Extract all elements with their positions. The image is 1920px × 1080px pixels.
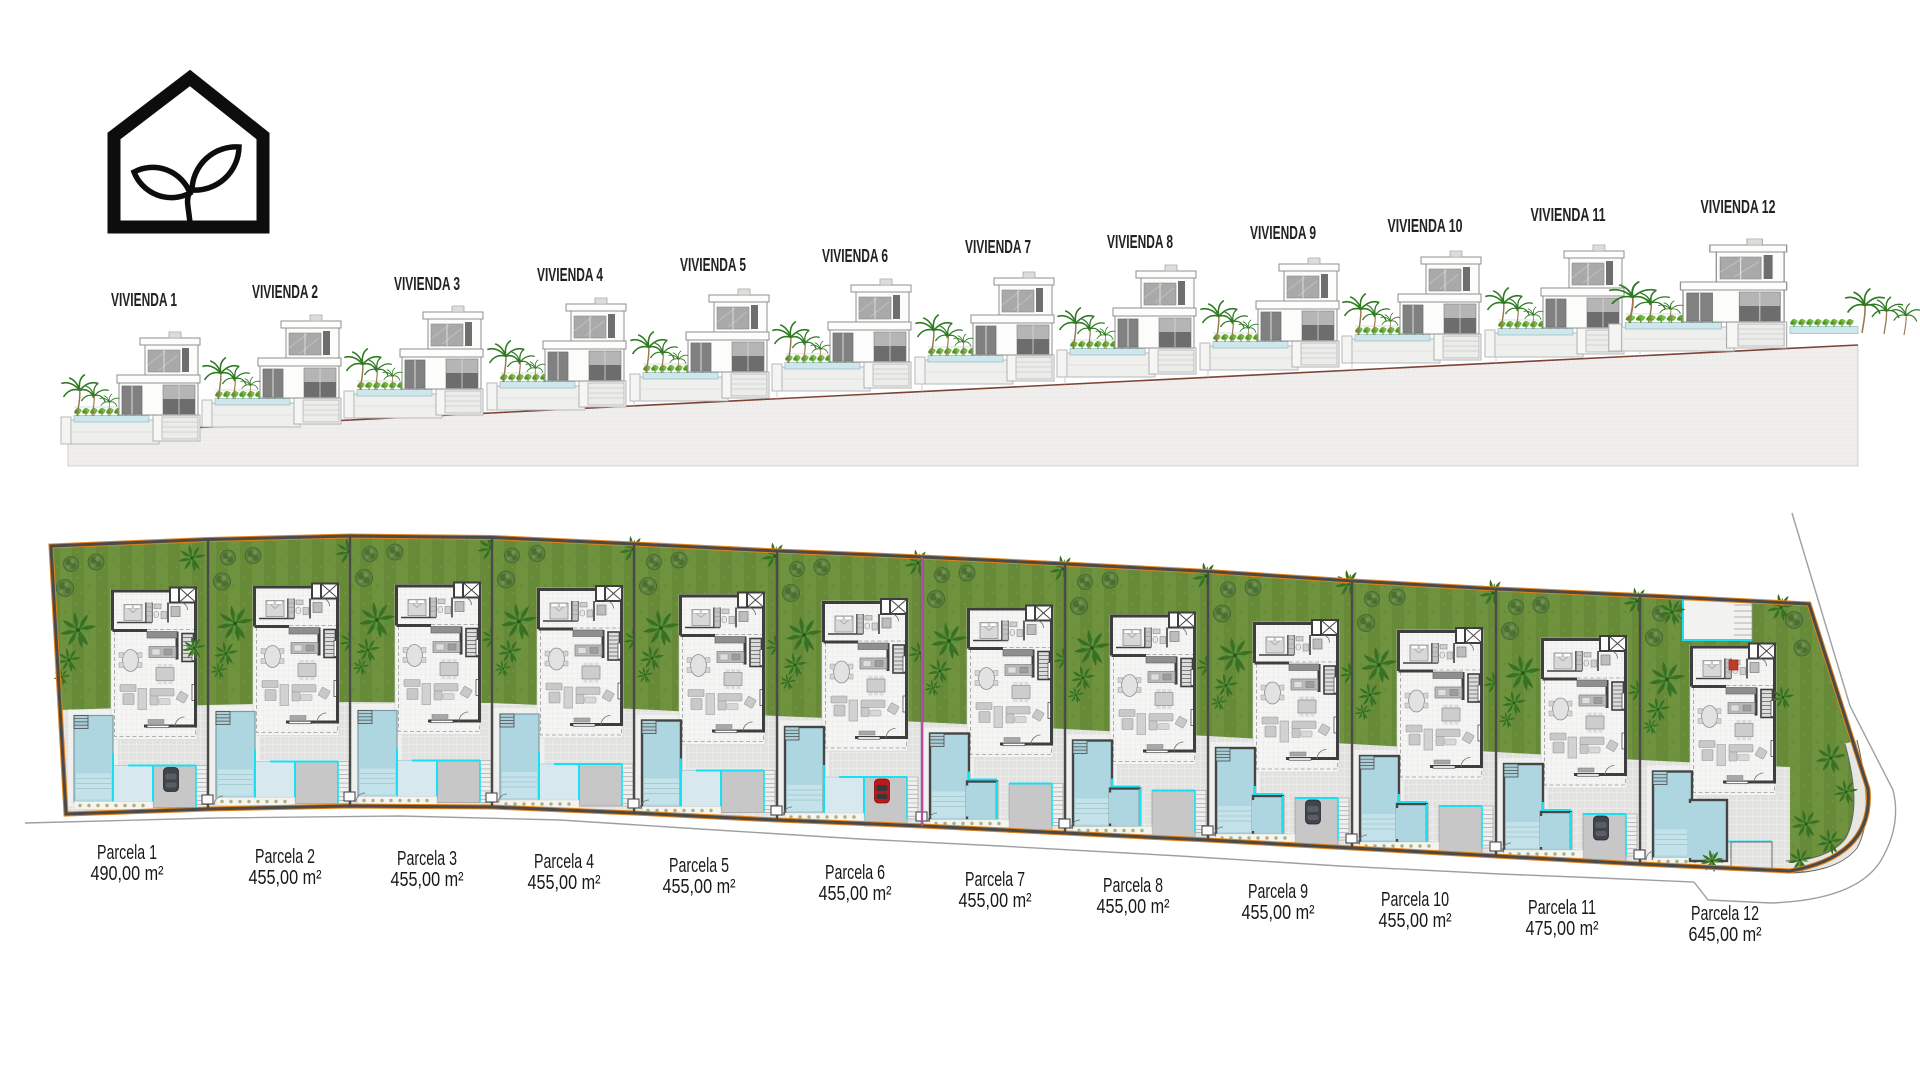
- svg-text:Parcela 11: Parcela 11: [1528, 896, 1596, 919]
- svg-text:VIVIENDA 10: VIVIENDA 10: [1388, 216, 1463, 236]
- svg-text:Parcela 3: Parcela 3: [397, 847, 457, 870]
- svg-text:455,00 m²: 455,00 m²: [1097, 895, 1170, 918]
- svg-text:645,00 m²: 645,00 m²: [1689, 923, 1762, 946]
- svg-text:Parcela 6: Parcela 6: [825, 861, 885, 884]
- svg-text:VIVIENDA 8: VIVIENDA 8: [1107, 232, 1173, 252]
- svg-text:VIVIENDA 1: VIVIENDA 1: [111, 290, 177, 310]
- svg-text:Parcela 5: Parcela 5: [669, 854, 729, 877]
- svg-text:455,00 m²: 455,00 m²: [819, 882, 892, 905]
- svg-text:VIVIENDA 12: VIVIENDA 12: [1701, 197, 1776, 217]
- svg-text:VIVIENDA 9: VIVIENDA 9: [1250, 223, 1316, 243]
- svg-text:VIVIENDA 4: VIVIENDA 4: [537, 265, 603, 285]
- svg-text:VIVIENDA 6: VIVIENDA 6: [822, 246, 888, 266]
- svg-text:VIVIENDA 3: VIVIENDA 3: [394, 274, 460, 294]
- svg-text:Parcela 2: Parcela 2: [255, 845, 315, 868]
- svg-text:455,00 m²: 455,00 m²: [959, 889, 1032, 912]
- svg-text:475,00 m²: 475,00 m²: [1526, 917, 1599, 940]
- svg-text:455,00 m²: 455,00 m²: [1242, 901, 1315, 924]
- svg-text:455,00 m²: 455,00 m²: [249, 866, 322, 889]
- svg-text:490,00 m²: 490,00 m²: [91, 862, 164, 885]
- svg-text:VIVIENDA 7: VIVIENDA 7: [965, 237, 1031, 257]
- svg-text:Parcela 1: Parcela 1: [97, 841, 157, 864]
- svg-text:455,00 m²: 455,00 m²: [663, 875, 736, 898]
- svg-text:455,00 m²: 455,00 m²: [1379, 909, 1452, 932]
- svg-text:VIVIENDA 11: VIVIENDA 11: [1531, 205, 1606, 225]
- svg-text:Parcela 9: Parcela 9: [1248, 880, 1308, 903]
- svg-text:VIVIENDA 5: VIVIENDA 5: [680, 255, 746, 275]
- svg-text:Parcela 12: Parcela 12: [1691, 902, 1759, 925]
- svg-text:VIVIENDA 2: VIVIENDA 2: [252, 282, 318, 302]
- svg-text:455,00 m²: 455,00 m²: [391, 868, 464, 891]
- svg-text:455,00 m²: 455,00 m²: [528, 871, 601, 894]
- svg-text:Parcela 8: Parcela 8: [1103, 874, 1163, 897]
- svg-text:Parcela 7: Parcela 7: [965, 868, 1025, 891]
- svg-text:Parcela 10: Parcela 10: [1381, 888, 1449, 911]
- svg-text:Parcela 4: Parcela 4: [534, 850, 594, 873]
